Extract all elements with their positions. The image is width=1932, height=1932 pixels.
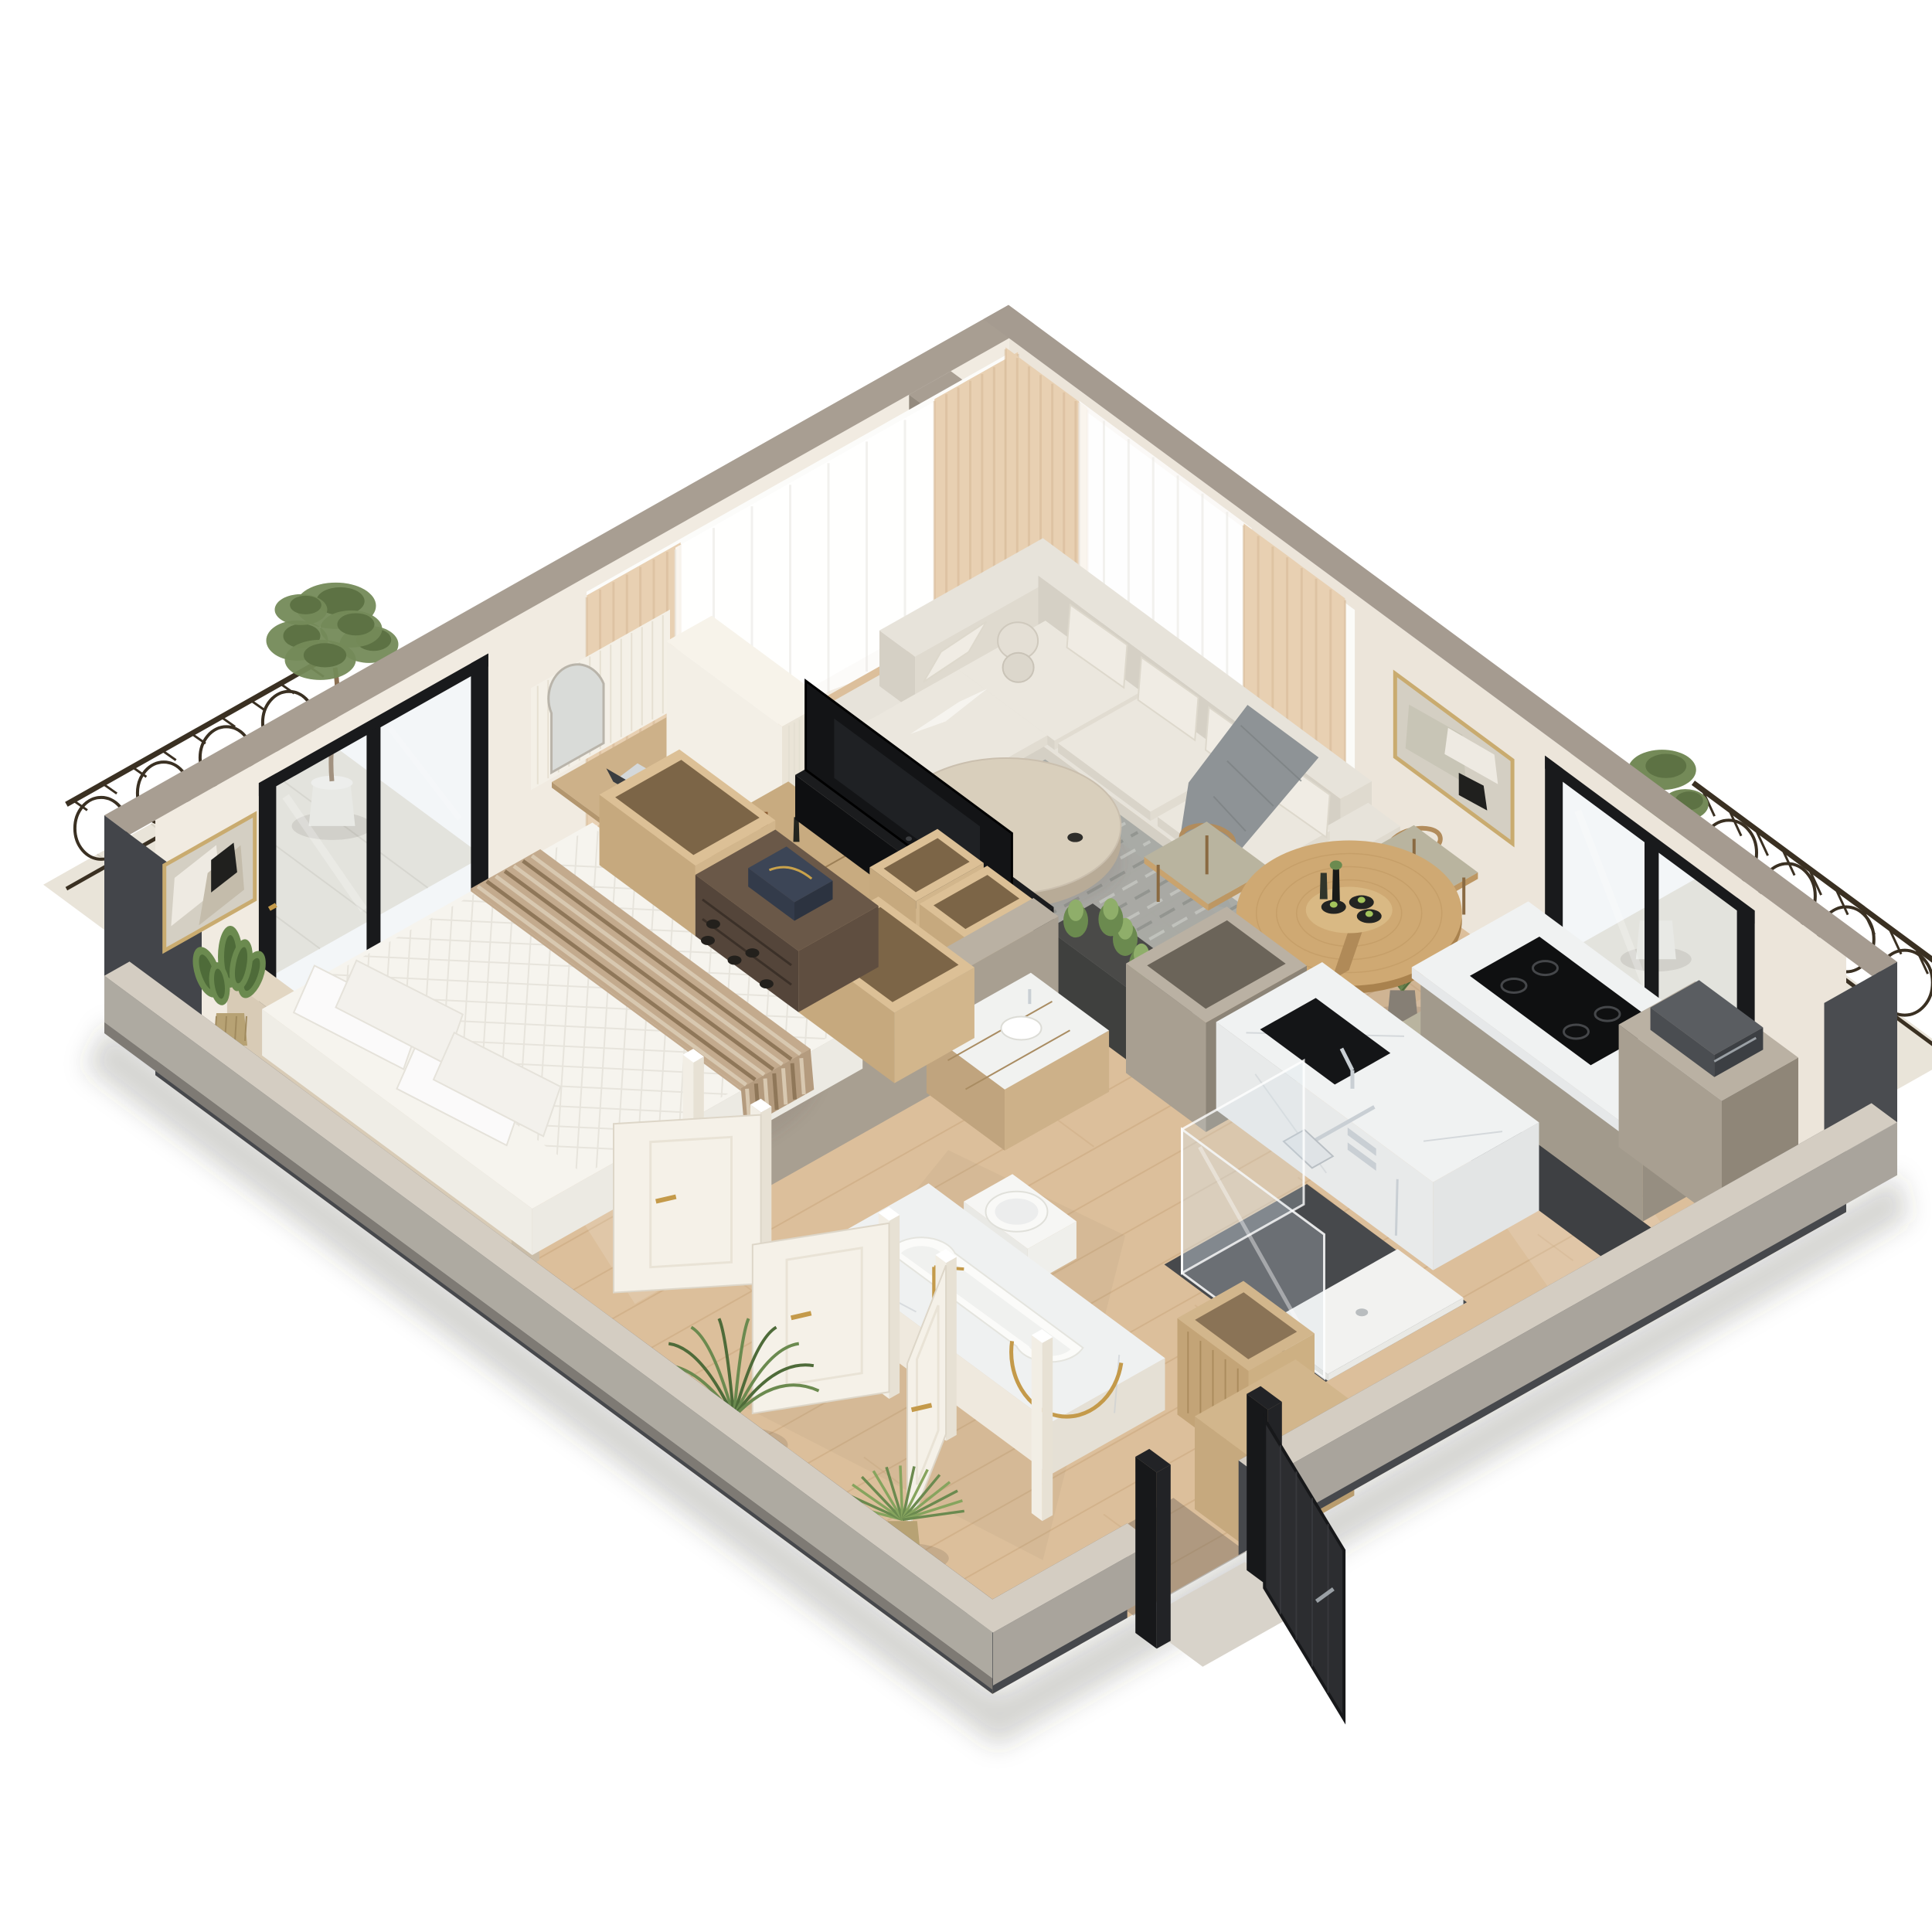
scene-layers xyxy=(0,0,1932,1747)
floorplan-render: 3D isometric cutaway floor plan render o… xyxy=(0,0,1932,1932)
isometric-floorplan: 3D isometric cutaway floor plan render o… xyxy=(0,0,1932,1932)
